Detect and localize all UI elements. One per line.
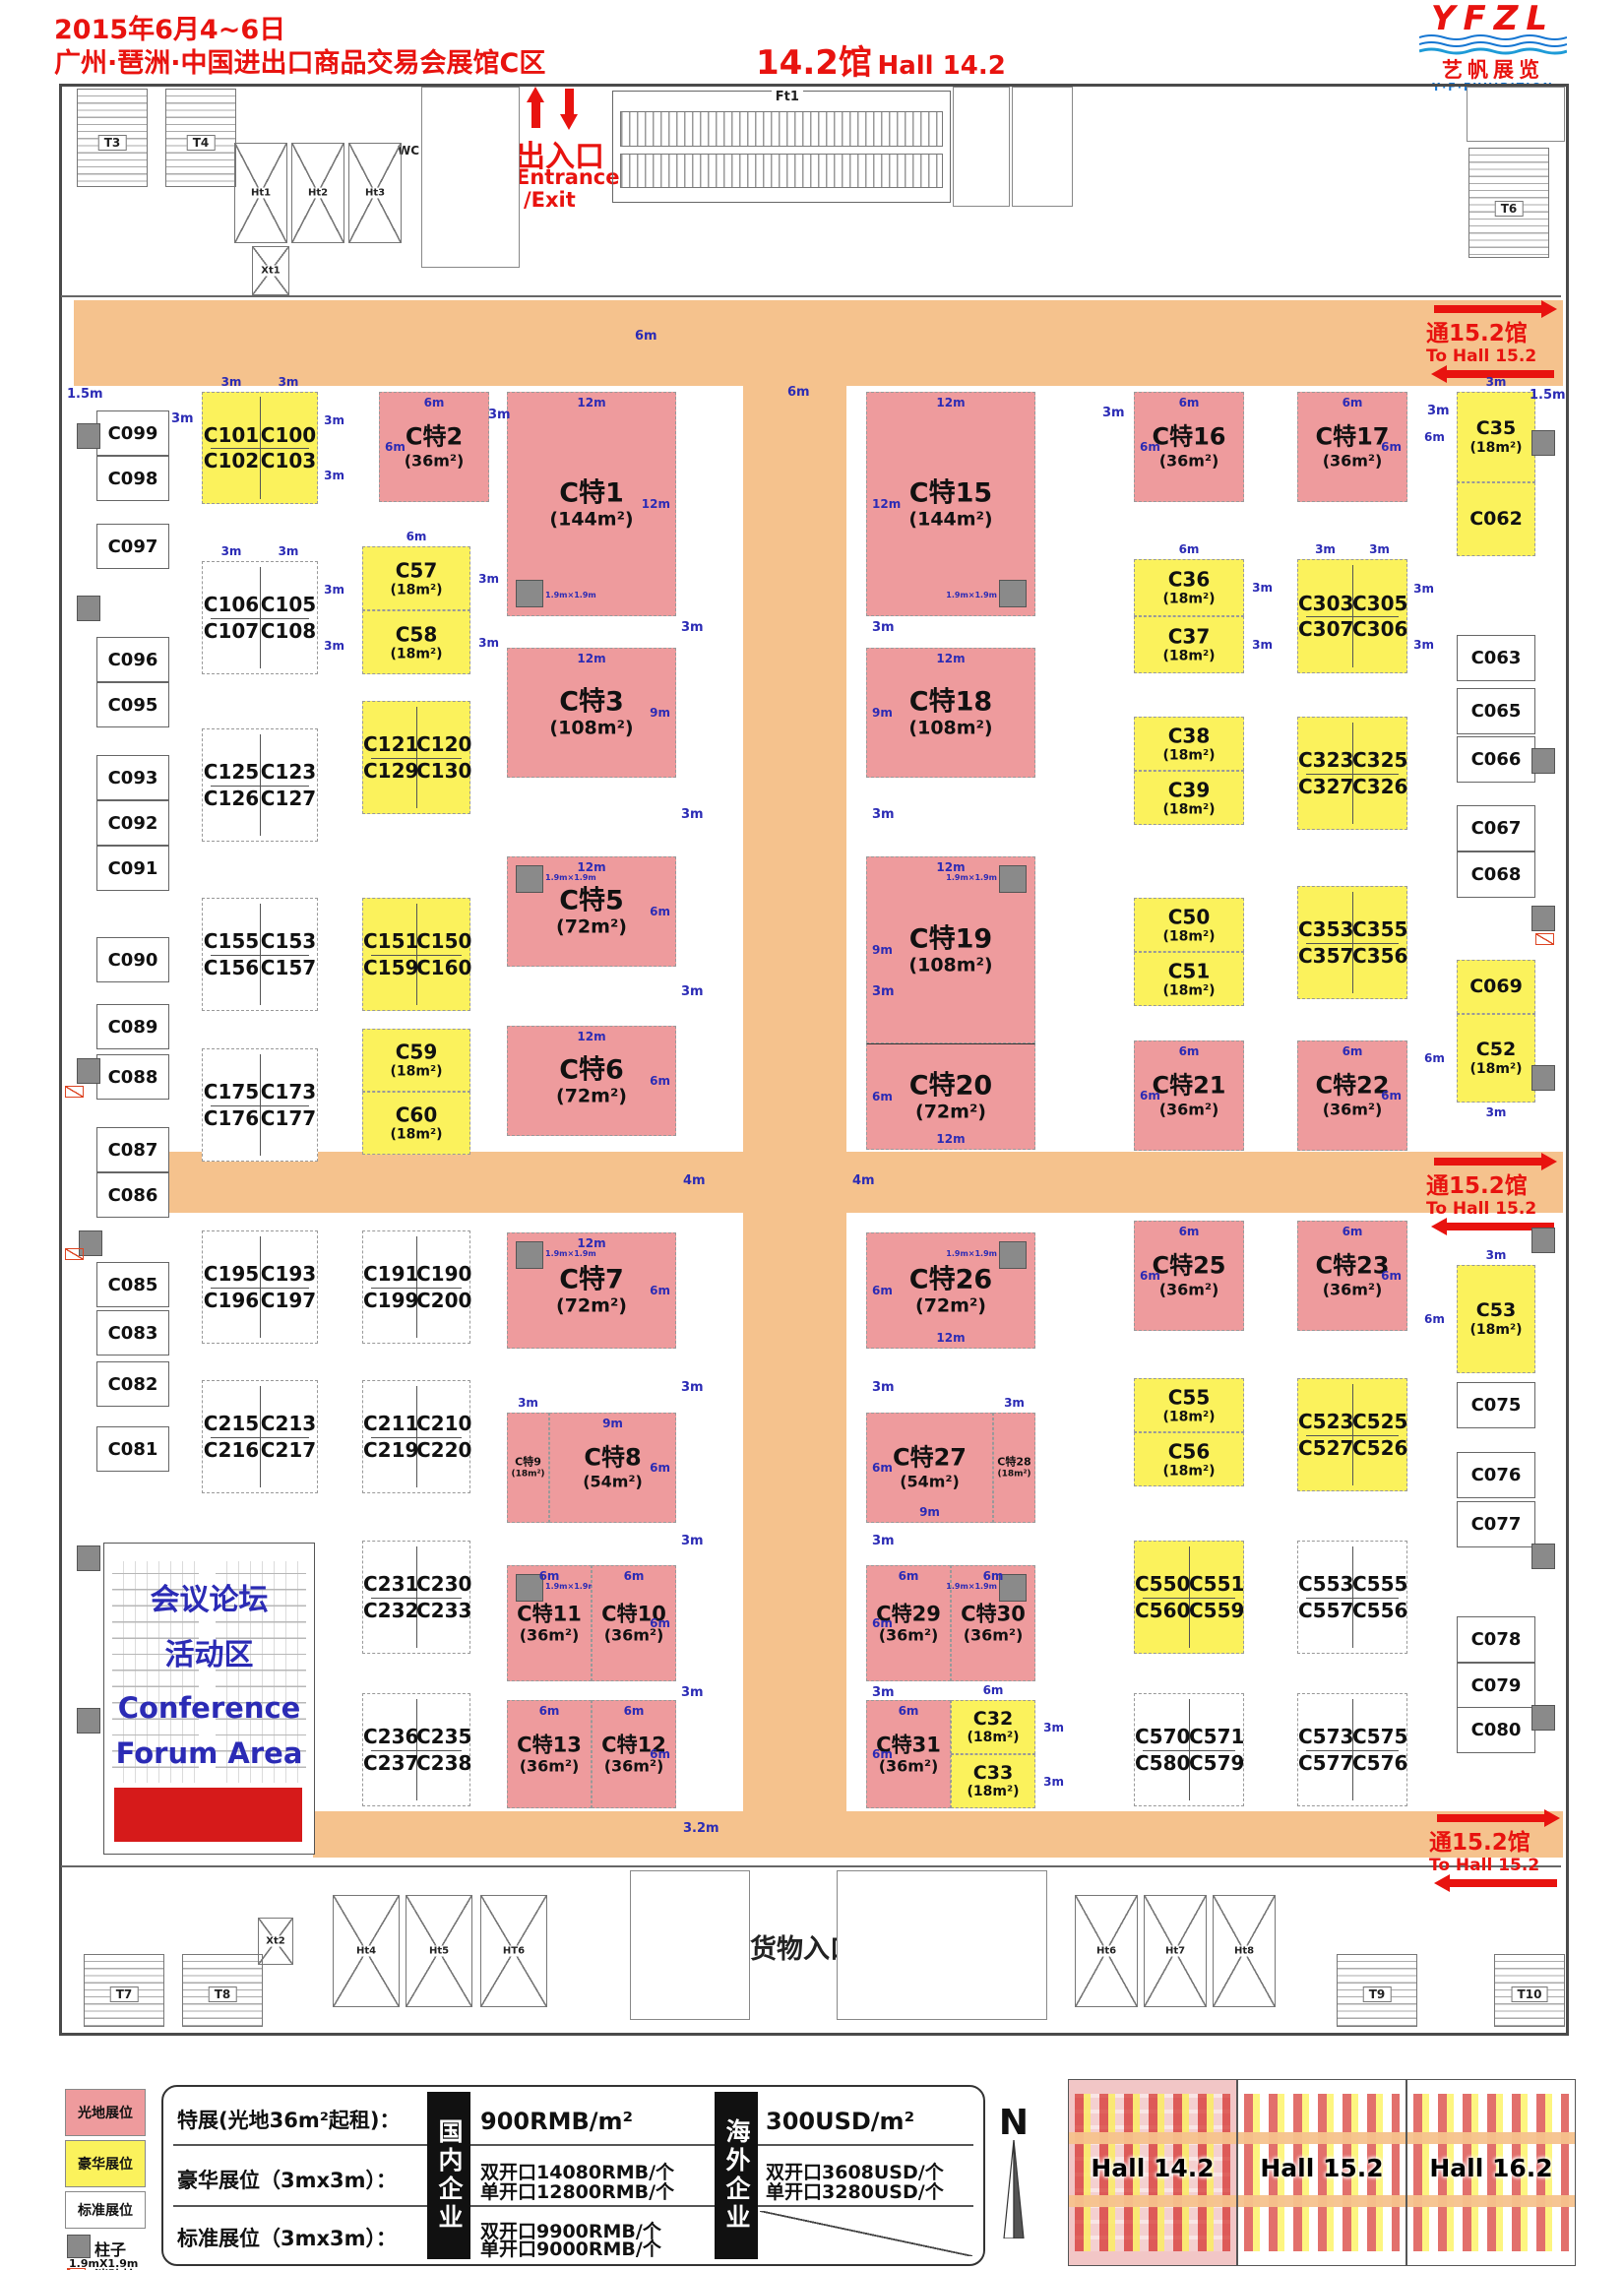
dimension-label: 6m [1424,1051,1445,1065]
booth-area: (36m²) [952,1626,1034,1645]
dimension-label: 12m [508,860,675,874]
booth-C特6: C特6(72m²)12m6m [507,1026,676,1136]
dimension-label: 12m [867,860,1034,874]
booth-area: (18m²) [1458,1061,1534,1077]
booth-area: (72m²) [508,1295,675,1317]
price-value: 单开口3280USD/个 [766,2177,980,2204]
booth-label: C527 [1298,1436,1352,1460]
elevator-label: Ht2 [306,188,330,199]
dimension-label: 12m [867,1331,1034,1345]
dimension-label: 3m [1427,404,1450,418]
stairs-T3: T3 [77,89,148,187]
booth-C特18: C特18(108m²)12m9m [866,648,1035,778]
dimension-label: 6m [650,1747,670,1761]
booth-label: C53 [1458,1300,1534,1322]
booth-block-C191-C190-C199-C200: C191C190C199C200 [362,1230,470,1344]
fire-hydrant-icon [65,1248,84,1260]
stage [114,1788,302,1842]
booth-area: (18m²) [1458,440,1534,456]
booth-block-C523-C525-C527-C526: C523C525C527C526 [1297,1378,1407,1491]
dimension-label: 6m [650,1284,670,1297]
elevator-Ht4: Ht4 [333,1895,400,2007]
dimension-label: 3m [508,1396,548,1410]
booth-label: C52 [1458,1040,1534,1061]
dimension-label: 3m [1369,542,1390,556]
fire-hydrant-icon [1535,933,1554,945]
dimension-label: 3m [1458,1248,1534,1262]
legend-deluxe-booth: 豪华展位 [65,2140,146,2187]
right-wall-booth-C067: C067 [1457,805,1535,851]
dimension-label: 9m [650,706,670,720]
dimension-label: 3m [1413,638,1434,652]
empty-cell-diagonal [760,2211,972,2256]
logo-mark: YFZL [1400,4,1587,33]
booth-label: C551 [1189,1572,1243,1596]
corridor-top [74,300,1563,386]
right-wall-booth-C075: C075 [1457,1382,1535,1428]
legend-raw-space-booth: 光地展位 [65,2089,146,2136]
dimension-label: 4m [683,1173,706,1188]
booth-C特2: C特2(36m²)6m6m [379,392,489,502]
dimension-label: 12m [508,1236,675,1250]
booth-label: C557 [1298,1599,1352,1622]
column-pillar [1531,1065,1555,1091]
to-hall-label-cn: 通15.2馆 [1426,1173,1569,1199]
booth-label: C108 [260,619,317,643]
elevator-label: Ht6 [1094,1946,1118,1957]
booth-area: (54m²) [867,1472,992,1490]
left-wall-booth-C081: C081 [96,1426,169,1472]
minimap-hall-16.2: Hall 16.2 [1406,2079,1576,2266]
column-pillar [77,423,100,449]
elevator-HT6: HT6 [480,1895,547,2007]
price-value: 单开口12800RMB/个 [480,2177,707,2204]
left-wall-booth-C090: C090 [96,937,169,982]
booth-area: (18m²) [363,1064,469,1080]
elevator-label: Ht4 [354,1946,378,1957]
legend-standard-booth: 标准展位 [65,2191,146,2229]
to-hall-15-2-sign: 通15.2馆To Hall 15.2 [1429,1830,1572,1875]
dimension-label: 3m [994,1396,1034,1410]
dimension-label: 6m [1381,1089,1402,1103]
booth-area: (36m²) [1135,451,1243,470]
booth-label: C157 [260,956,317,979]
elevator-label: Xt1 [259,266,281,277]
booth-block-C155-C153-C156-C157: C155C153C156C157 [202,898,318,1011]
booth-label: C129 [363,759,416,783]
elevator-Ht6: Ht6 [1075,1895,1138,2007]
booth-area: (108m²) [508,718,675,739]
dimension-label: 3m [279,544,299,558]
booth-C55: C55(18m²) [1134,1378,1244,1432]
booth-block-C353-C355-C357-C356: C353C355C357C356 [1297,886,1407,999]
booth-C特20: C特20(72m²)6m12m [866,1043,1035,1150]
left-wall-booth-C082: C082 [96,1361,169,1407]
left-wall-booth-C092: C092 [96,800,169,846]
booth-label: C237 [363,1751,416,1775]
booth-area: (36m²) [508,1626,591,1645]
left-wall-booth-C099: C099 [96,410,169,456]
booth-area: (18m²) [1135,801,1243,817]
booth-label: C175 [203,1080,260,1103]
entrance-arrow-up-icon [527,87,544,102]
bottom-strip-wall [61,1865,1561,1867]
stairs-label: T8 [209,1986,237,2002]
dimension-label: 3m [279,375,299,389]
booth-block-C175-C173-C176-C177: C175C173C176C177 [202,1048,318,1162]
dimension-label: 3m [872,620,895,635]
booth-area: (72m²) [867,1295,1034,1317]
elevator-label: Ht7 [1163,1946,1187,1957]
dimension-label: 6m [787,385,810,400]
column-pillar [999,580,1027,607]
booth-label: C560 [1135,1599,1189,1622]
booth-label: C60 [363,1104,469,1127]
facility-room [630,1870,750,2020]
dimension-label: 12m [867,652,1034,665]
legend-pillar-swatch [67,2235,91,2258]
booth-area: (72m²) [867,1102,1034,1123]
booth-C59: C59(18m²) [362,1029,470,1092]
logo-cn: 艺帆展览 [1400,59,1587,81]
booth-label: C35 [1458,418,1534,440]
conference-forum-area: 会议论坛 活动区 Conference Forum Area [103,1543,315,1855]
booth-label: C59 [363,1041,469,1064]
booth-label: C37 [1135,626,1243,649]
booth-area: (18m²) [1135,928,1243,944]
booth-label: C120 [416,732,469,756]
dimension-label: 3m [221,544,242,558]
booth-label: C323 [1298,748,1352,772]
dimension-label: 1.5m [1530,388,1566,403]
column-pillar [999,1241,1027,1269]
dimension-label: 6m [872,1090,893,1103]
stairs-T4: T4 [165,89,236,187]
booth-label: C555 [1352,1572,1406,1596]
column-pillar [1531,1228,1555,1253]
booth-label: C150 [416,929,469,953]
elevator-Ht5: Ht5 [406,1895,472,2007]
booth-block-C195-C193-C196-C197: C195C193C196C197 [202,1230,318,1344]
price-value: 300USD/m² [766,2108,980,2135]
dimension-label: 3m [1458,375,1534,389]
booth-label: C305 [1352,592,1406,615]
booth-block-C121-C120-C129-C130: C121C120C129C130 [362,701,470,814]
booth-C60: C60(18m²) [362,1092,470,1155]
dimension-label: 6m [1140,1089,1160,1103]
elevator-label: Ht5 [427,1946,451,1957]
dimension-label: 12m [508,652,675,665]
booth-C特27: C特27(54m²)6m9m [866,1413,993,1523]
arrow-right-icon [1434,305,1542,313]
booth-label: C特9 [508,1457,548,1470]
booth-label: C325 [1352,748,1406,772]
dimension-label: 12m [867,396,1034,410]
booth-C特22: C特22(36m²)6m6m [1297,1040,1407,1151]
stairs-label: T3 [98,135,127,151]
pillar-size-note: 1.9m×1.9m [946,873,997,882]
booth-block-C573-C575-C577-C576: C573C575C577C576 [1297,1693,1407,1806]
booth-label: C211 [363,1412,416,1435]
compass-needle-icon [1002,2140,1026,2238]
conference-label-cn2: 活动区 [104,1630,314,1673]
dimension-label: 6m [635,329,657,344]
entrance-label-en2: /Exit [524,188,576,212]
booth-C特9: C特9(18m²)3m [507,1413,549,1523]
pillar-size-note: 1.9m×1.9m [545,1249,596,1258]
booth-label: C173 [260,1080,317,1103]
dimension-label: 6m [872,1284,893,1297]
minimap-hall-15.2: Hall 15.2 [1237,2079,1406,2266]
dimension-label: 3m [324,413,344,427]
booth-label: C307 [1298,617,1352,641]
booth-C特15: C特15(144m²)12m12m1.9m×1.9m [866,392,1035,616]
minimap-hall-label: Hall 16.2 [1407,2154,1575,2182]
facility-room [953,87,1010,207]
booth-label: C57 [363,559,469,582]
booth-label: C39 [1135,779,1243,801]
to-hall-label-cn: 通15.2馆 [1426,321,1569,347]
booth-label: C177 [260,1106,317,1130]
escalator-label: Ft1 [772,90,803,104]
dimension-label: 3m [681,807,704,822]
booth-C57: C57(18m²)6m3m [362,546,470,610]
booth-label: C196 [203,1289,260,1312]
price-row-label: 豪华展位（3mx3m）： [177,2165,425,2194]
left-wall-booth-C088: C088 [96,1054,169,1100]
booth-area: (36m²) [1135,1280,1243,1298]
column-pillar [77,1708,100,1734]
booth-C特13: C特13(36m²)6m [507,1700,592,1808]
stairs-label: T6 [1495,201,1524,217]
dimension-label: 6m [508,1704,591,1718]
booth-label: C153 [260,929,317,953]
booth-area: (18m²) [994,1469,1034,1479]
dimension-label: 12m [508,396,675,410]
elevator-Xt2: Xt2 [258,1918,293,1965]
booth-area: (18m²) [1135,649,1243,664]
booth-label: C156 [203,956,260,979]
booth-area: (18m²) [363,646,469,662]
booth-label: C151 [363,929,416,953]
booth-C特1: C特1(144m²)12m12m1.9m×1.9m [507,392,676,616]
corridor-bottom [313,1811,1563,1858]
right-wall-booth-C076: C076 [1457,1452,1535,1498]
dimension-label: 3m [324,639,344,653]
booth-label: C106 [203,593,260,616]
booth-label: C213 [260,1412,317,1435]
booth-label: C580 [1135,1751,1189,1775]
booth-label: C220 [416,1438,469,1462]
stairs-T7: T7 [84,1954,164,2027]
booth-C特25: C特25(36m²)6m6m [1134,1221,1244,1331]
booth-area: (18m²) [363,582,469,598]
booth-label: C121 [363,732,416,756]
column-pillar [1531,748,1555,774]
organizer-logo: YFZL 艺帆展览 Y·F·EXHIBITION [1400,4,1587,94]
booth-block-C151-C150-C159-C160: C151C150C159C160 [362,898,470,1011]
left-wall-booth-C091: C091 [96,846,169,891]
booth-block-C550-C551-C560-C559: C550C551C560C559 [1134,1541,1244,1654]
booth-label: C特30 [952,1602,1034,1625]
left-wall-booth-C093: C093 [96,755,169,800]
booth-C特12: C特12(36m²)6m6m [592,1700,676,1808]
dimension-label: 9m [872,706,893,720]
booth-label: C236 [363,1725,416,1748]
booth-label: C197 [260,1289,317,1312]
minimap-hall-label: Hall 15.2 [1238,2154,1405,2182]
dimension-label: 3m [1413,582,1434,596]
booth-C特28: C特28(18m²)3m [993,1413,1035,1523]
booth-label: C130 [416,759,469,783]
to-hall-label-cn: 通15.2馆 [1429,1830,1572,1856]
left-wall-booth-C083: C083 [96,1310,169,1356]
booth-area: (18m²) [1458,1322,1534,1338]
dimension-label: 3m [488,408,511,422]
facility-room [1467,87,1565,142]
elevator-Ht7: Ht7 [1144,1895,1207,2007]
dimension-label: 3m [478,572,499,586]
booth-block-C211-C210-C219-C220: C211C210C219C220 [362,1380,470,1493]
booth-label: C576 [1352,1751,1406,1775]
dimension-label: 9m [872,943,893,957]
booth-block-C125-C123-C126-C127: C125C123C126C127 [202,728,318,842]
booth-area: (144m²) [867,509,1034,531]
dimension-label: 12m [867,1132,1034,1146]
booth-label: C559 [1189,1599,1243,1622]
stairs-label: T4 [187,135,216,151]
booth-label: C357 [1298,944,1352,968]
stairs-T6: T6 [1468,148,1549,258]
elevator-label: Xt2 [264,1936,286,1947]
stairs-T9: T9 [1337,1954,1417,2027]
elevator-label: Ht3 [363,188,387,199]
booth-label: C553 [1298,1572,1352,1596]
dimension-label: 6m [650,1074,670,1088]
conference-label-en1: Conference [104,1691,314,1725]
stairs-label: T10 [1512,1986,1548,2002]
elevator-Ht3: Ht3 [348,143,402,243]
dimension-label: 6m [1424,1312,1445,1326]
dimension-label: 3m [1458,1105,1534,1119]
dimension-label: 12m [508,1030,675,1043]
booth-area: (18m²) [1135,747,1243,763]
dimension-label: 6m [1135,1044,1243,1058]
booth-block-C570-C571-C580-C579: C570C571C580C579 [1134,1693,1244,1806]
booth-label: C50 [1135,906,1243,928]
booth-label: C573 [1298,1725,1352,1748]
dimension-label: 6m [1135,1225,1243,1238]
dimension-label: 6m [952,1683,1034,1697]
dimension-label: 3m [681,1685,704,1700]
booth-label: C55 [1135,1386,1243,1409]
booth-area: (18m²) [952,1784,1034,1799]
arrow-right-icon [1434,1158,1542,1166]
escalator-Ft1: Ft1 [612,91,951,203]
dimension-label: 3m [872,1685,895,1700]
booth-label: C特13 [508,1733,591,1756]
dimension-label: 6m [872,1616,893,1630]
corridor-vertical [743,386,846,1811]
column-pillar [77,1058,100,1084]
booth-area: (18m²) [1135,1463,1243,1479]
dimension-label: 6m [1140,440,1160,454]
booth-area: (18m²) [508,1469,548,1479]
dimension-label: 3m [1252,581,1273,595]
column-pillar [1531,430,1555,456]
hall-title: 14.2馆 Hall 14.2 [756,35,1006,84]
dimension-label: 3m [681,1380,704,1395]
booth-block-C101-C100-C102-C103: C101C100C102C1033m3m3m3m [202,392,318,504]
booth-block-C215-C213-C216-C217: C215C213C216C217 [202,1380,318,1493]
booth-label: C107 [203,619,260,643]
booth-area: (36m²) [1298,1100,1406,1118]
dimension-label: 6m [650,905,670,918]
compass: N [992,2107,1035,2242]
right-wall-booth-C068: C068 [1457,851,1535,898]
booth-label: C326 [1352,775,1406,798]
arrow-right-icon [1437,1814,1545,1822]
dimension-label: 3m [221,375,242,389]
booth-label: C327 [1298,775,1352,798]
conference-label-cn1: 会议论坛 [104,1575,314,1618]
booth-C特29: C特29(36m²)6m6m [866,1565,951,1681]
dimension-label: 9m [867,1505,992,1519]
booth-block-C231-C230-C232-C233: C231C230C232C233 [362,1541,470,1654]
pillar-size-note: 1.9m×1.9m [545,591,596,599]
booth-label: C32 [952,1709,1034,1731]
booth-label: C232 [363,1599,416,1622]
dimension-label: 6m [1298,396,1406,410]
booth-block-C106-C105-C107-C108: C106C105C107C1083m3m3m3m [202,561,318,674]
booth-C37: C37(18m²)3m [1134,616,1244,673]
dimension-label: 3m [324,583,344,597]
booth-label: C353 [1298,917,1352,941]
elevator-Ht8: Ht8 [1213,1895,1276,2007]
to-hall-15-2-sign: 通15.2馆To Hall 15.2 [1426,321,1569,366]
entrance-arrow-down-icon [560,114,578,130]
booth-label: C069 [1458,977,1534,998]
dimension-label: 6m [593,1569,675,1583]
booth-label: C126 [203,787,260,810]
booth-label: C100 [260,423,317,447]
booth-C特30: C特30(36m²)6m1.9m×1.9m [951,1565,1035,1681]
booth-area: (108m²) [867,955,1034,977]
booth-block-C553-C555-C557-C556: C553C555C557C556 [1297,1541,1407,1654]
booth-area: (144m²) [508,509,675,531]
dimension-label: 3m [171,411,194,426]
price-row-label: 特展(光地36m²起租)： [177,2105,425,2134]
right-wall-booth-C077: C077 [1457,1501,1535,1547]
logo-waves-icon [1419,33,1567,59]
left-wall-booth-C096: C096 [96,637,169,682]
booth-area: (18m²) [1135,1409,1243,1424]
dimension-label: 6m [1298,1225,1406,1238]
price-value: 单开口9000RMB/个 [480,2235,707,2261]
right-wall-booth-C078: C078 [1457,1616,1535,1663]
booth-label: C550 [1135,1572,1189,1596]
booth-C32: C32(18m²)6m3m [951,1700,1035,1754]
booth-label: C575 [1352,1725,1406,1748]
booth-label: C193 [260,1262,317,1286]
dimension-label: 3m [1315,542,1336,556]
domestic-enterprise-bar: 国内企业 [427,2092,470,2259]
booth-area: (18m²) [1135,592,1243,607]
booth-label: C特28 [994,1457,1034,1470]
booth-area: (72m²) [508,1086,675,1107]
dimension-label: 6m [872,1461,893,1475]
booth-C特19: C特19(108m²)12m9m1.9m×1.9m [866,856,1035,1043]
